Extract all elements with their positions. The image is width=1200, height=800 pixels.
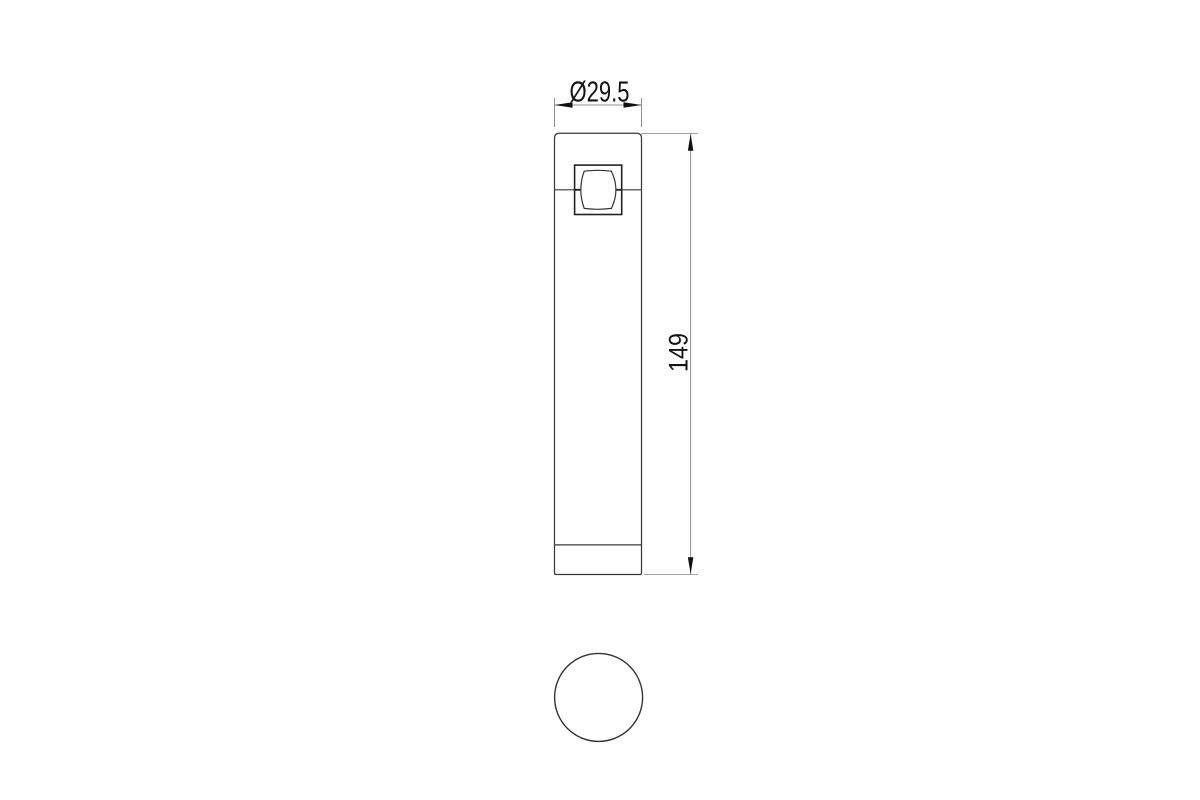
svg-text:149: 149 — [664, 333, 694, 372]
svg-text:Ø29.5: Ø29.5 — [570, 77, 630, 109]
